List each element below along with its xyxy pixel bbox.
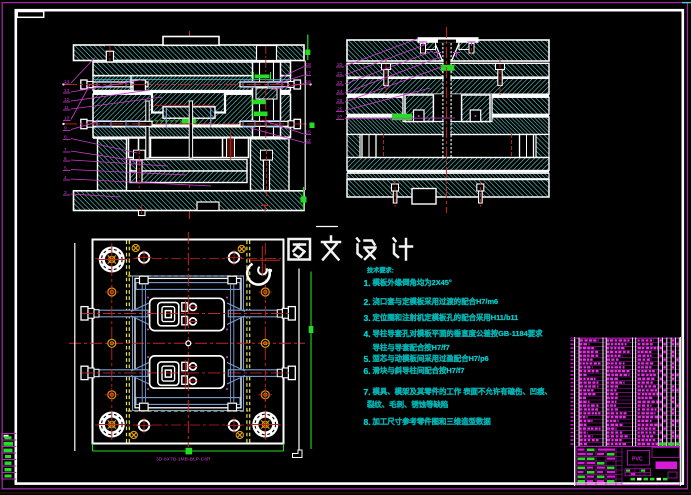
- svg-text:4.: 4.: [364, 329, 371, 339]
- svg-text:模板外缘倒角均为2X45°: 模板外缘倒角均为2X45°: [373, 278, 452, 287]
- svg-text:技术要求:: 技术要求:: [367, 267, 394, 275]
- svg-text:2.: 2.: [364, 297, 371, 307]
- svg-text:浇口套与定模板采用过渡的配合H7/m6: 浇口套与定模板采用过渡的配合H7/m6: [373, 297, 499, 306]
- svg-text:PVC: PVC: [632, 457, 643, 463]
- svg-text:8.: 8.: [364, 417, 371, 427]
- svg-text:3.: 3.: [364, 313, 371, 323]
- svg-text:导柱与导套配合按H7/f7: 导柱与导套配合按H7/f7: [373, 343, 450, 352]
- svg-text:5.: 5.: [364, 354, 371, 364]
- svg-text:滑块与斜导柱间配合按H7/f7: 滑块与斜导柱间配合按H7/f7: [373, 366, 465, 375]
- svg-text:模具、模架及其零件的工作 表面不允许有磕伤、凹痕、: 模具、模架及其零件的工作 表面不允许有磕伤、凹痕、: [373, 387, 552, 396]
- svg-text:3D-8X7B-1MB-BLP-C8R: 3D-8X7B-1MB-BLP-C8R: [156, 457, 211, 463]
- svg-text:1.: 1.: [364, 278, 371, 288]
- svg-text:裂纹、毛刺、锈蚀等缺陷: 裂纹、毛刺、锈蚀等缺陷: [366, 400, 448, 409]
- svg-text:6.: 6.: [364, 366, 371, 376]
- svg-text:型芯与动模板间采用过盈配合H7/p6: 型芯与动模板间采用过盈配合H7/p6: [373, 354, 489, 363]
- svg-text:导柱导套孔对模板平面的垂直度公差按GB-1184要求: 导柱导套孔对模板平面的垂直度公差按GB-1184要求: [373, 329, 544, 338]
- svg-text:7.: 7.: [364, 387, 371, 397]
- svg-text:加工尺寸参考零件图和三维造型数据: 加工尺寸参考零件图和三维造型数据: [372, 417, 492, 426]
- svg-text:定位圈和注射机定模板孔的配合采用H11/b11: 定位圈和注射机定模板孔的配合采用H11/b11: [373, 313, 519, 322]
